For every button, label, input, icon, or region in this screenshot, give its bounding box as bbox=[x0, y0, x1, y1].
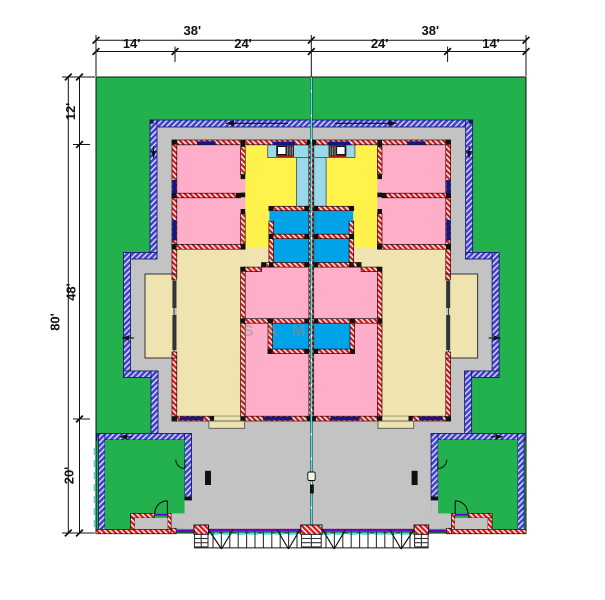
svg-text:24': 24' bbox=[234, 36, 252, 51]
svg-text:80': 80' bbox=[48, 313, 63, 331]
svg-text:M: M bbox=[292, 323, 305, 340]
svg-text:S: S bbox=[243, 323, 254, 340]
svg-text:A: A bbox=[266, 323, 278, 340]
svg-text:48': 48' bbox=[64, 283, 79, 301]
svg-text:14': 14' bbox=[123, 36, 141, 51]
svg-text:38': 38' bbox=[184, 23, 202, 38]
svg-text:24': 24' bbox=[371, 36, 389, 51]
svg-text:38': 38' bbox=[422, 23, 440, 38]
svg-text:20': 20' bbox=[61, 467, 76, 485]
svg-text:12': 12' bbox=[63, 103, 78, 121]
svg-text:14': 14' bbox=[482, 36, 500, 51]
